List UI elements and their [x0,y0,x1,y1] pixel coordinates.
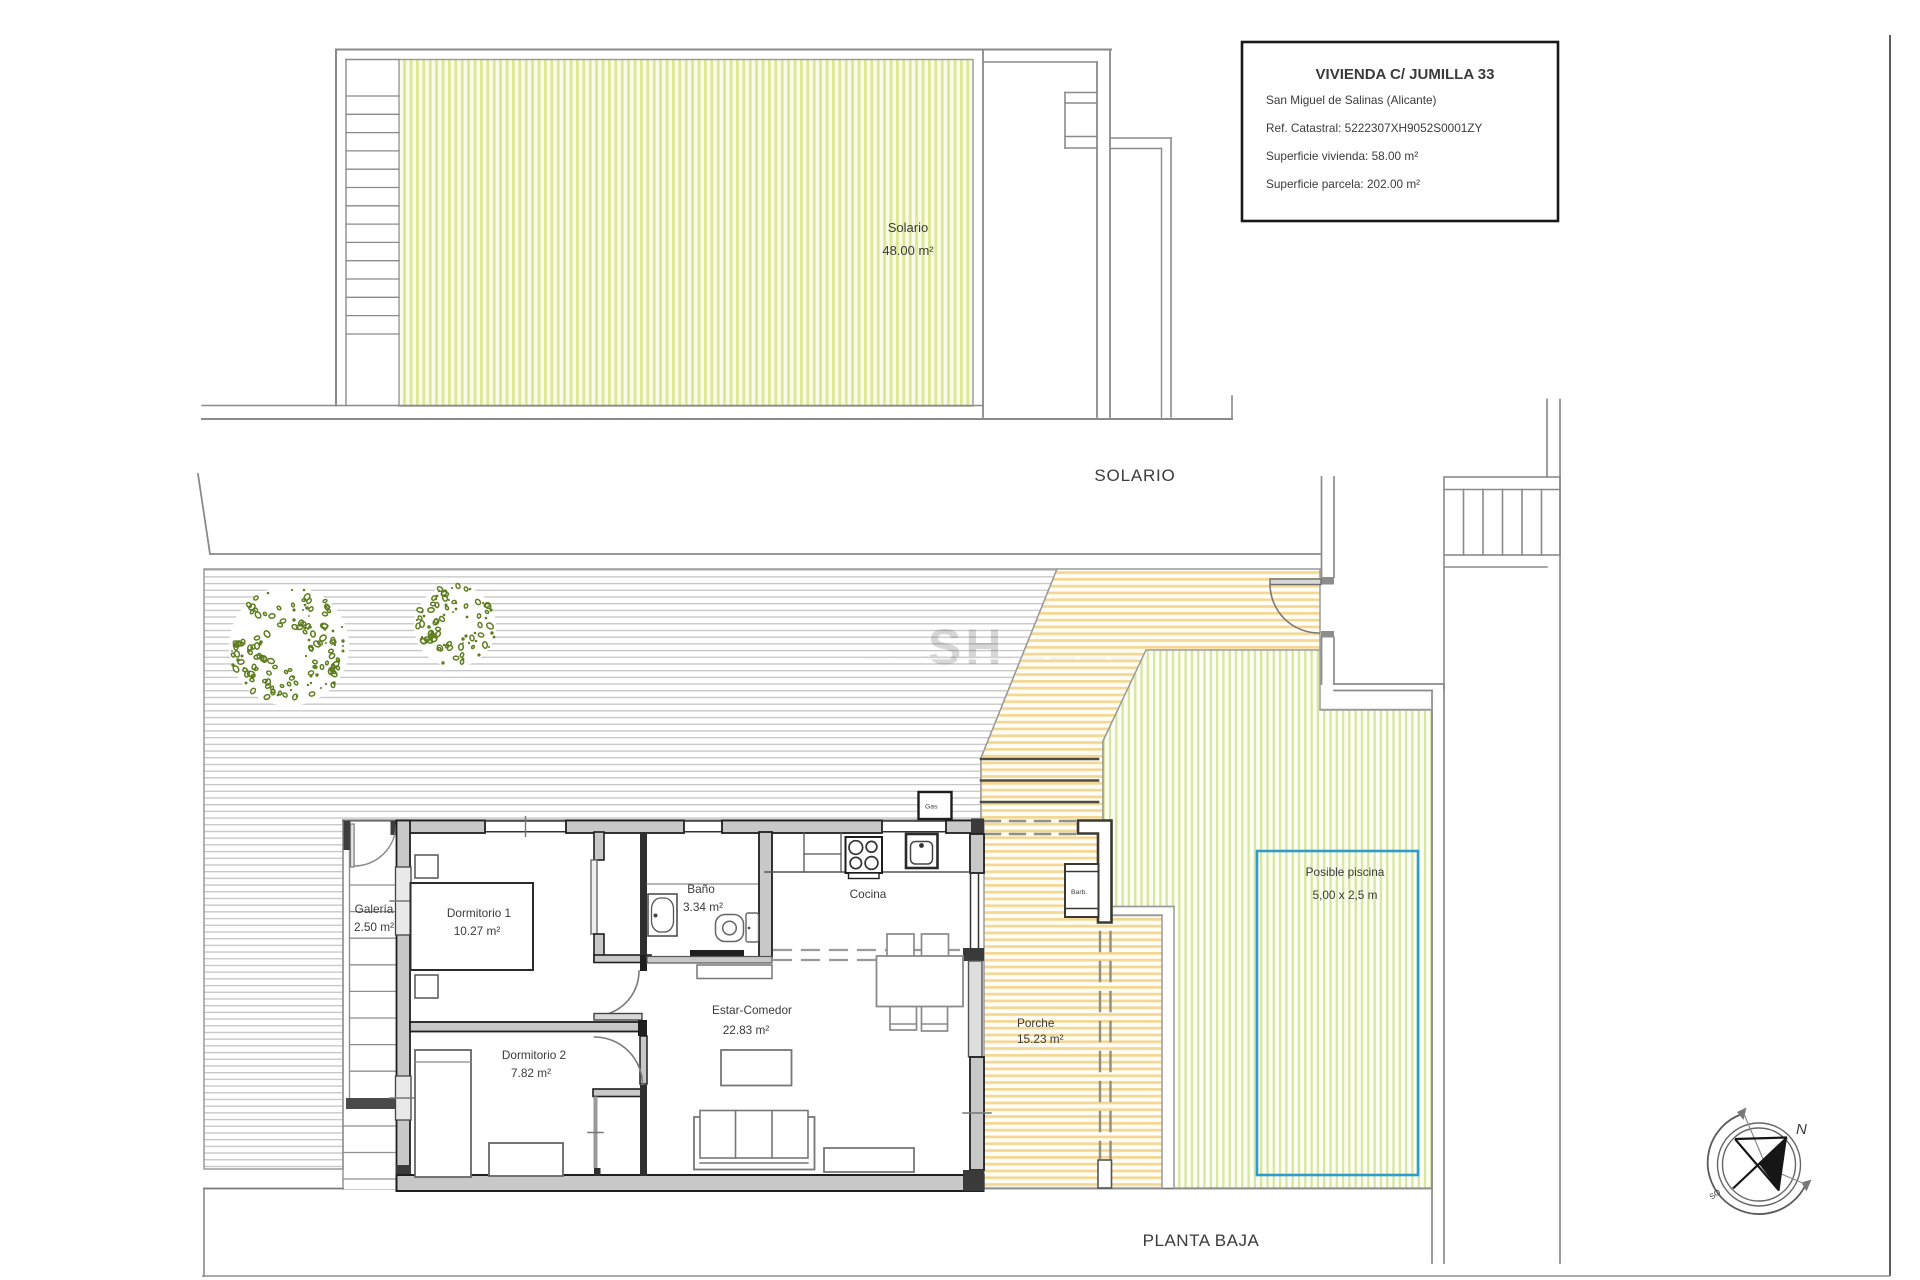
svg-text:SH: SH [928,619,1005,675]
svg-text:Solario: Solario [888,220,928,235]
svg-text:Superficie parcela: 202.00 m²: Superficie parcela: 202.00 m² [1266,177,1420,191]
svg-text:SOLARIO: SOLARIO [1094,466,1175,485]
svg-text:7.82 m²: 7.82 m² [511,1066,551,1080]
svg-text:15.23 m²: 15.23 m² [1017,1032,1064,1046]
svg-text:San Miguel de Salinas (Alicant: San Miguel de Salinas (Alicante) [1266,93,1437,107]
svg-text:N: N [1796,1121,1807,1138]
svg-text:Dormitorio 1: Dormitorio 1 [447,906,511,920]
svg-text:Gas: Gas [925,804,938,811]
svg-text:10.27 m²: 10.27 m² [454,924,501,938]
svg-text:Baño: Baño [687,882,715,896]
svg-text:Superficie vivienda: 58.00 m²: Superficie vivienda: 58.00 m² [1266,149,1418,163]
svg-text:5,00 x 2,5 m: 5,00 x 2,5 m [1313,888,1378,902]
svg-text:3.34 m²: 3.34 m² [683,900,723,914]
svg-text:Barb.: Barb. [1071,889,1087,896]
svg-text:22.83 m²: 22.83 m² [723,1023,770,1037]
svg-text:Porche: Porche [1017,1016,1055,1030]
svg-text:2.50 m²: 2.50 m² [354,920,394,934]
svg-text:48.00 m²: 48.00 m² [882,243,934,258]
svg-text:Galería: Galería [355,902,394,916]
svg-text:Dormitorio 2: Dormitorio 2 [502,1048,566,1062]
svg-text:Posible piscina: Posible piscina [1306,865,1385,879]
svg-text:Cocina: Cocina [850,887,887,901]
svg-text:VIVIENDA C/ JUMILLA 33: VIVIENDA C/ JUMILLA 33 [1316,66,1495,83]
svg-text:Ref. Catastral: 5222307XH9052S: Ref. Catastral: 5222307XH9052S0001ZY [1266,121,1483,135]
svg-text:Estar-Comedor: Estar-Comedor [712,1003,792,1017]
svg-text:PLANTA BAJA: PLANTA BAJA [1143,1231,1260,1250]
